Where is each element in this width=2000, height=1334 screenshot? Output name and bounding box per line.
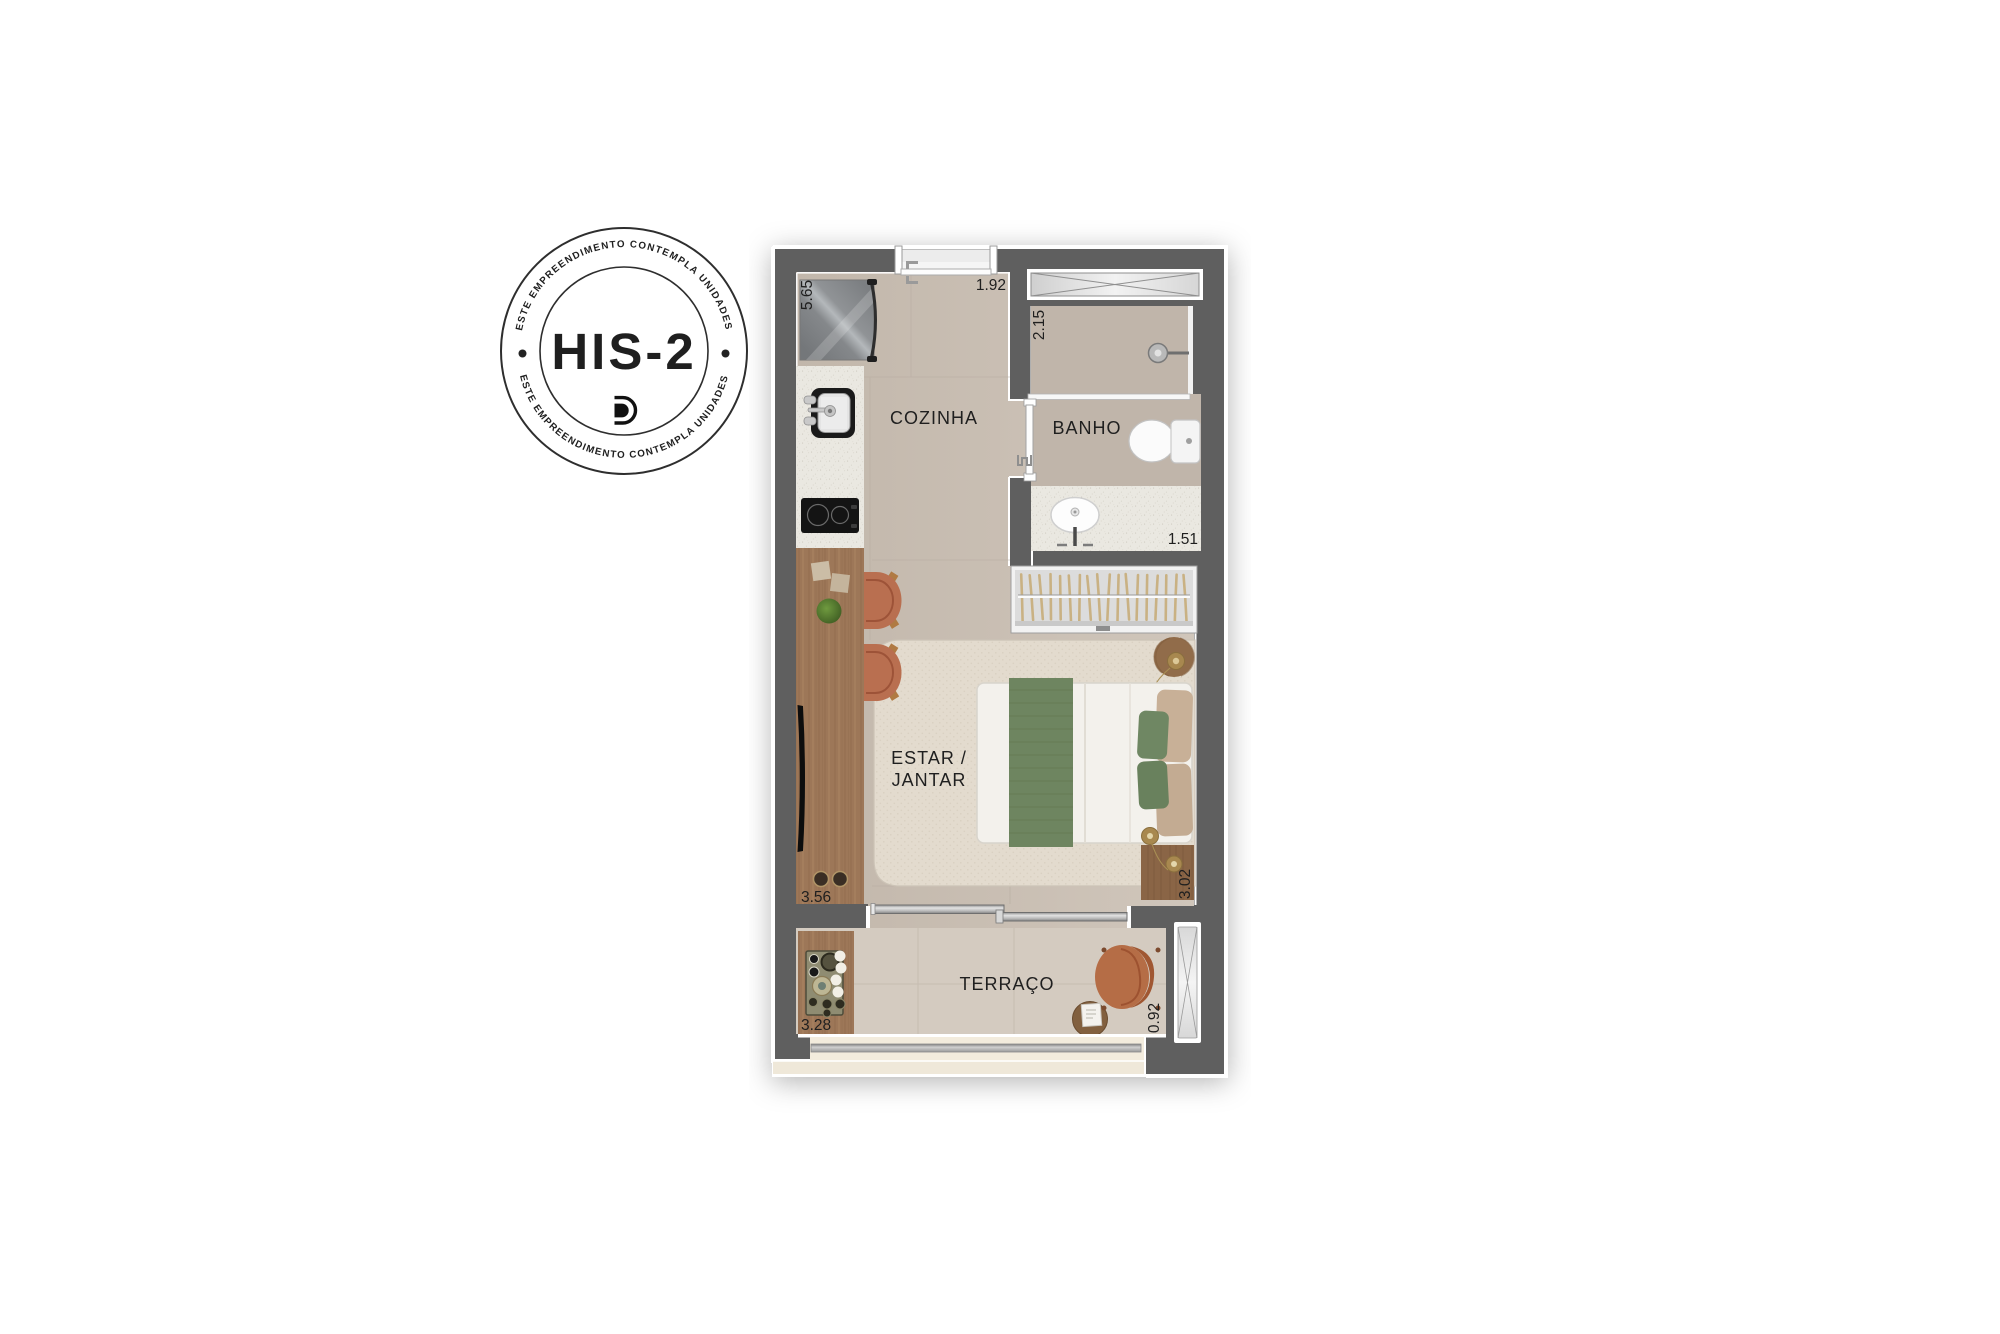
svg-text:BANHO: BANHO: [1052, 418, 1121, 438]
svg-text:1.92: 1.92: [976, 277, 1006, 294]
svg-text:5.65: 5.65: [799, 280, 816, 310]
svg-text:COZINHA: COZINHA: [890, 408, 978, 428]
svg-text:3.02: 3.02: [1177, 869, 1194, 899]
svg-text:JANTAR: JANTAR: [892, 770, 967, 790]
svg-text:0.92: 0.92: [1146, 1003, 1163, 1033]
svg-text:TERRAÇO: TERRAÇO: [959, 974, 1054, 994]
svg-text:3.28: 3.28: [801, 1017, 831, 1034]
svg-text:1.51: 1.51: [1168, 531, 1198, 548]
svg-text:ESTAR /: ESTAR /: [891, 748, 967, 768]
svg-text:2.15: 2.15: [1031, 310, 1048, 340]
svg-text:3.56: 3.56: [801, 889, 831, 906]
svg-text:HIS-2: HIS-2: [551, 323, 696, 380]
